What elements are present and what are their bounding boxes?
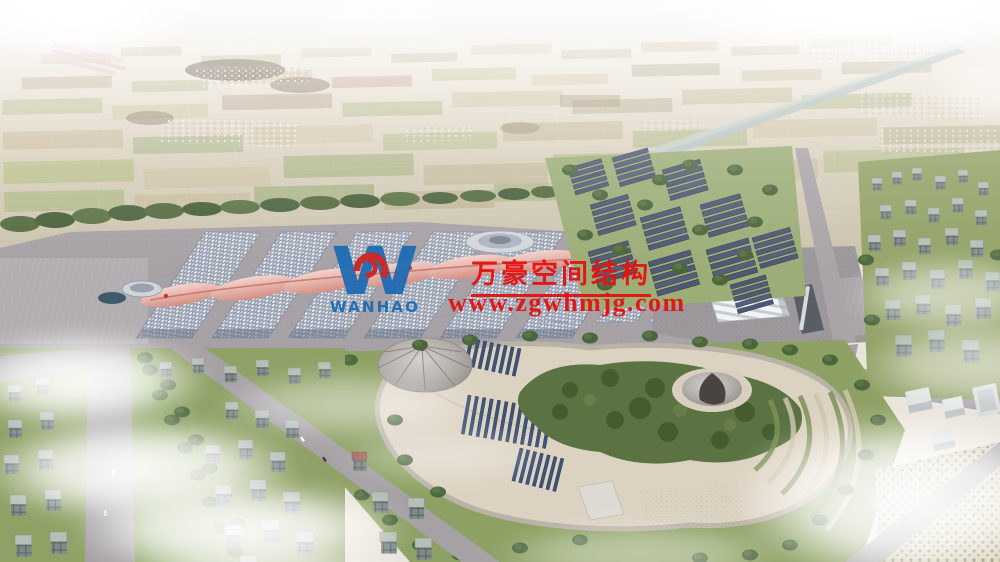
park: [300, 331, 905, 562]
pond: [98, 292, 126, 304]
round-hall: [122, 281, 162, 297]
central-disc-building: [466, 231, 534, 253]
vertical-road: [85, 348, 135, 562]
crater-structure: [672, 368, 752, 412]
parking-stripes: [0, 258, 148, 344]
rendered-scene: [0, 0, 1000, 562]
aerial-render-image: W WANHAO 万豪空间结构 www.zgwhmjg.com: [0, 0, 1000, 562]
greenhouse-array-zone: [545, 146, 806, 314]
farmland-horizon: [0, 0, 1000, 260]
right-city-district: [858, 150, 1000, 400]
red-roof-building: [352, 452, 367, 471]
